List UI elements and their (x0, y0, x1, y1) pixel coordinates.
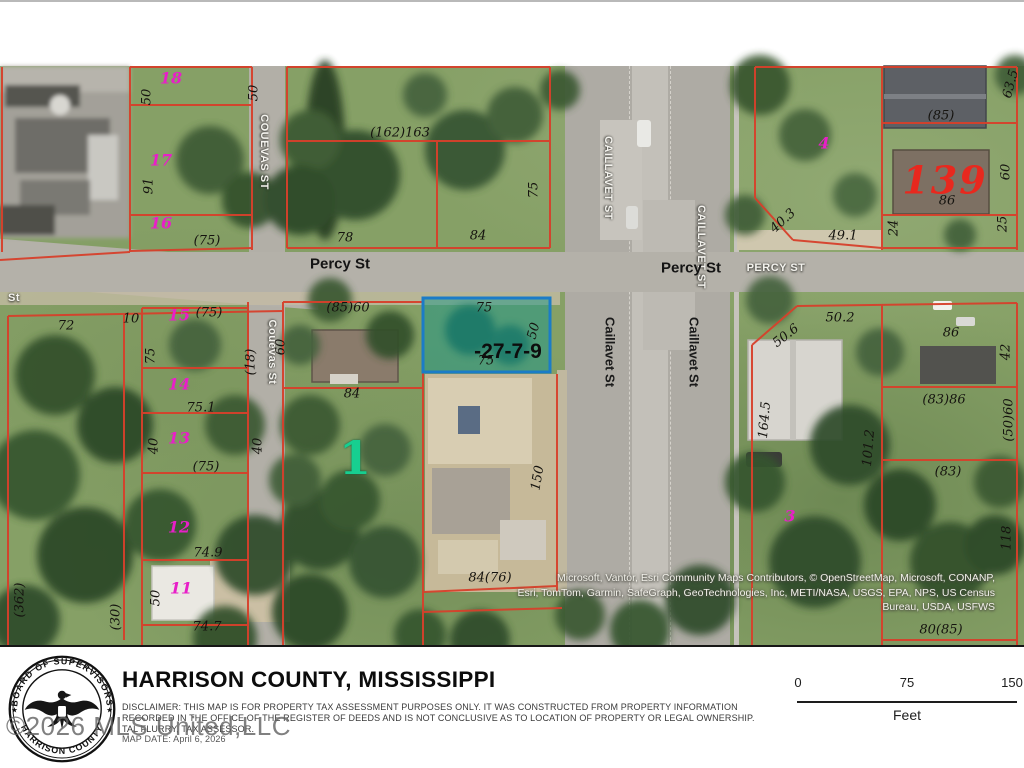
aerial-basemap (0, 66, 1024, 645)
top-border (0, 0, 1024, 2)
copyright-watermark: ©2026 MLS United,LLC (6, 711, 291, 742)
parcel-map-report: 185050179116(75)(162)163788475COUEVAS ST… (0, 0, 1024, 768)
attribution-line: Bureau, USDA, USFWS (517, 600, 995, 615)
footer: BOARD OF SUPERVISORS HARRISON COUNTY ★ ★… (0, 645, 1024, 768)
road-shoulder (0, 292, 560, 305)
scale-end-label: 150 (1001, 675, 1023, 690)
county-seal: BOARD OF SUPERVISORS HARRISON COUNTY ★ ★ (6, 653, 118, 765)
concrete-slab (600, 120, 642, 240)
scale-line (797, 701, 1017, 703)
road-couevas-st (249, 66, 285, 645)
scale-unit-label: Feet (893, 707, 921, 723)
scale-start-label: 0 (794, 675, 801, 690)
map-attribution: Microsoft, Vantor, Esri Community Maps C… (517, 571, 995, 615)
attribution-line: Microsoft, Vantor, Esri Community Maps C… (517, 571, 995, 586)
scale-mid-label: 75 (900, 675, 914, 690)
sidewalk (734, 66, 739, 645)
lane-line (670, 66, 671, 645)
attribution-line: Esri, TomTom, Garmin, SafeGraph, GeoTech… (517, 586, 995, 601)
road-percy-st (0, 252, 1024, 292)
page-title: HARRISON COUNTY, MISSISSIPPI (122, 667, 495, 693)
road-caillavet-st (565, 66, 730, 645)
scale-bar: 0 75 150 Feet (795, 665, 1023, 721)
